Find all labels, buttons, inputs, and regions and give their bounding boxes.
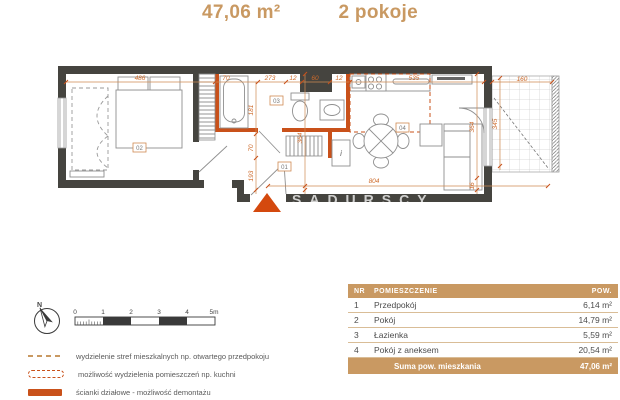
room-label-bedroom: 02 — [136, 146, 143, 152]
room-table: NR POMIESZCZENIE POW. 1 Przedpokój 6,14 … — [348, 284, 618, 374]
row-nr: 3 — [354, 330, 374, 340]
cabinet-label: i — [340, 149, 342, 158]
washbasin — [320, 100, 344, 120]
dim-label: 181 — [248, 104, 255, 115]
scale-bar: 0 1 2 3 4 5m — [73, 309, 218, 325]
legend-label: możliwość wydzielenia pomieszczeń np. ku… — [78, 370, 236, 379]
room-label-bathroom: 03 — [273, 99, 280, 105]
bathroom-door — [259, 131, 280, 153]
chair — [397, 134, 409, 149]
dashed-line-swatch — [28, 355, 62, 357]
dim-label: 804 — [369, 178, 380, 185]
table-row: 4 Pokój z aneksem 20,54 m² — [348, 343, 618, 358]
dim-label: 12 — [289, 75, 297, 82]
sum-label: Suma pow. mieszkania — [374, 362, 552, 371]
title-area: 47,06 m² — [202, 2, 280, 24]
chair — [353, 134, 365, 149]
compass-icon: N — [35, 302, 60, 334]
table-header: NR POMIESZCZENIE POW. — [348, 284, 618, 298]
hall-closet — [286, 136, 322, 156]
header-name: POMIESZCZENIE — [374, 288, 552, 295]
header-area: POW. — [552, 288, 612, 295]
dim-label: 60 — [311, 75, 319, 82]
scale-tick: 3 — [157, 309, 161, 316]
sofa — [444, 124, 482, 190]
row-area: 20,54 m² — [552, 345, 612, 355]
room-label-hall: 01 — [281, 165, 288, 171]
table-sum-row: Suma pow. mieszkania 47,06 m² — [348, 358, 618, 374]
wardrobe-dashed — [72, 88, 108, 170]
scale-tick: 0 — [73, 309, 77, 316]
table-row: 2 Pokój 14,79 m² — [348, 313, 618, 328]
dim-label: 16 — [469, 182, 476, 190]
room-label-living: 04 — [399, 126, 406, 132]
header-nr: NR — [354, 288, 374, 295]
dim-label: 364 — [297, 132, 304, 143]
dining-set — [353, 114, 409, 168]
dim-label: 70 — [222, 75, 230, 82]
row-name: Przedpokój — [374, 300, 552, 310]
dim-label: 486 — [135, 75, 146, 82]
watermark: SADURSCY — [292, 192, 435, 208]
row-nr: 4 — [354, 345, 374, 355]
title-room-count: 2 pokoje — [338, 2, 417, 24]
legend-item: wydzielenie stref mieszkalnych np. otwar… — [28, 347, 269, 365]
legend-item: możliwość wydzielenia pomieszczeń np. ku… — [28, 365, 269, 383]
floorplan-page: 47,06 m² 2 pokoje — [0, 0, 620, 400]
dashed-outline-swatch — [28, 370, 64, 378]
row-name: Pokój — [374, 315, 552, 325]
balcony — [492, 76, 559, 172]
legend-item: ścianki działowe - możliwość demontażu — [28, 383, 269, 400]
scale-tick: 4 — [185, 309, 189, 316]
bathtub — [220, 76, 248, 128]
legend-label: wydzielenie stref mieszkalnych np. otwar… — [76, 352, 269, 361]
row-name: Pokój z aneksem — [374, 345, 552, 355]
dim-label: 535 — [409, 75, 420, 82]
bedroom-door — [199, 146, 227, 172]
table-row: 3 Łazienka 5,59 m² — [348, 328, 618, 343]
toilet — [291, 93, 309, 121]
legend: wydzielenie stref mieszkalnych np. otwar… — [28, 347, 269, 400]
row-area: 14,79 m² — [552, 315, 612, 325]
table-row: 1 Przedpokój 6,14 m² — [348, 298, 618, 313]
dim-label: 12 — [335, 75, 343, 82]
row-area: 6,14 m² — [552, 300, 612, 310]
scale-tick: 5m — [209, 309, 218, 316]
compass-north-label: N — [37, 302, 42, 309]
dim-label: 160 — [517, 76, 528, 83]
bed — [116, 77, 182, 148]
page-title: 47,06 m² 2 pokoje — [0, 2, 620, 24]
row-nr: 2 — [354, 315, 374, 325]
radiator — [70, 171, 104, 177]
row-area: 5,59 m² — [552, 330, 612, 340]
dim-label: 364 — [469, 121, 476, 132]
scale-tick: 2 — [129, 309, 133, 316]
dim-label: 345 — [492, 118, 499, 129]
bedroom-closet — [199, 74, 215, 140]
legend-label: ścianki działowe - możliwość demontażu — [76, 388, 211, 397]
scale-tick: 1 — [101, 309, 105, 316]
dim-label: 273 — [264, 75, 276, 82]
cabinet: i — [332, 140, 350, 166]
dim-label: 193 — [248, 170, 255, 181]
dim-label: 70 — [248, 144, 255, 152]
row-nr: 1 — [354, 300, 374, 310]
solid-wall-swatch — [28, 389, 62, 396]
tv — [437, 77, 465, 80]
coffee-table — [420, 124, 442, 146]
entrance-arrow — [253, 193, 281, 212]
sum-value: 47,06 m² — [552, 362, 612, 371]
row-name: Łazienka — [374, 330, 552, 340]
tv-bench — [432, 75, 472, 84]
